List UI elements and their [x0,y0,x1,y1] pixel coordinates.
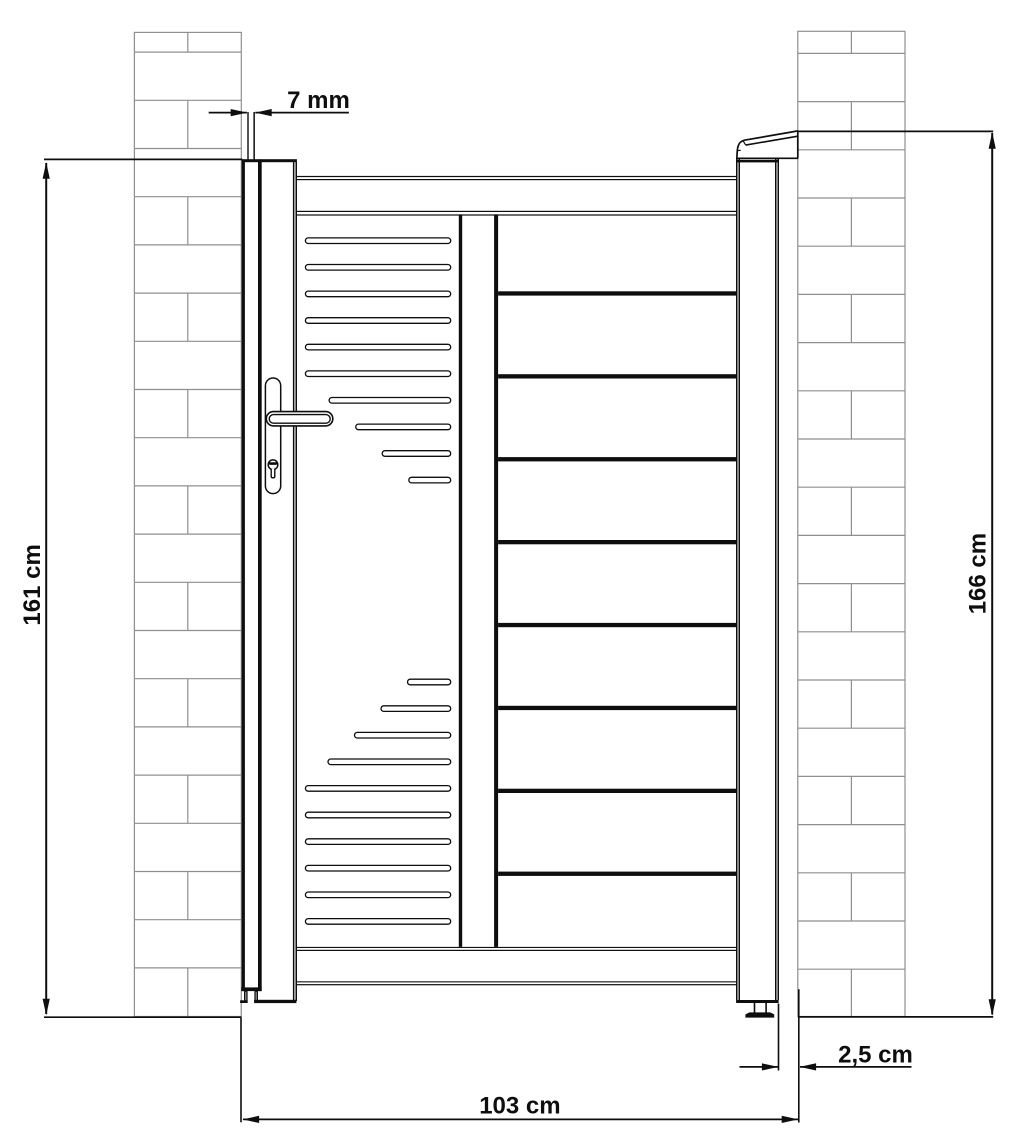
svg-text:2,5 cm: 2,5 cm [838,1041,913,1068]
svg-text:7 mm: 7 mm [287,87,350,114]
svg-text:166 cm: 166 cm [965,533,992,614]
svg-text:103 cm: 103 cm [479,1093,560,1120]
svg-text:161 cm: 161 cm [19,544,46,625]
